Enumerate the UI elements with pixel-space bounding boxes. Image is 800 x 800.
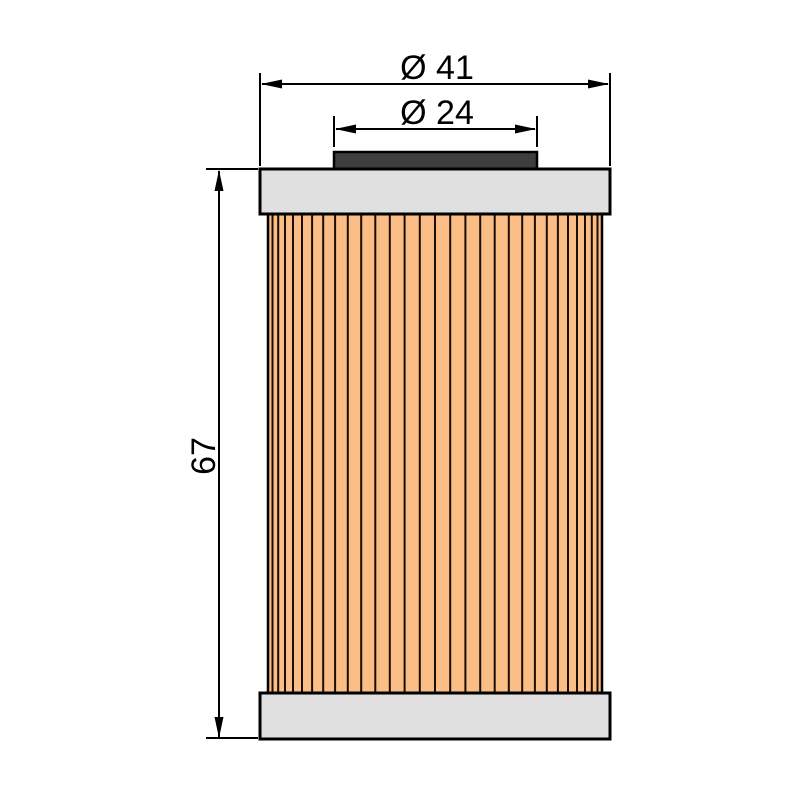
arrowhead-bottom (215, 717, 224, 738)
gasket-diameter-dimension: Ø 24 (334, 94, 537, 147)
top-end-cap (260, 169, 610, 214)
height-dimension: 67 (185, 169, 258, 738)
gasket-diameter-label: Ø 24 (400, 94, 474, 132)
height-label: 67 (185, 437, 223, 475)
filter-media (268, 211, 602, 695)
arrowhead-left (335, 125, 356, 134)
bottom-end-cap (260, 693, 610, 739)
arrowhead-right (515, 125, 536, 134)
arrowhead-top (215, 170, 224, 191)
arrowhead-left (261, 80, 282, 89)
arrowhead-right (588, 80, 609, 89)
drawing-canvas: Ø 41 Ø 24 67 (0, 0, 800, 800)
oil-filter-technical-drawing: Ø 41 Ø 24 67 (0, 0, 800, 800)
outer-diameter-label: Ø 41 (400, 49, 474, 87)
